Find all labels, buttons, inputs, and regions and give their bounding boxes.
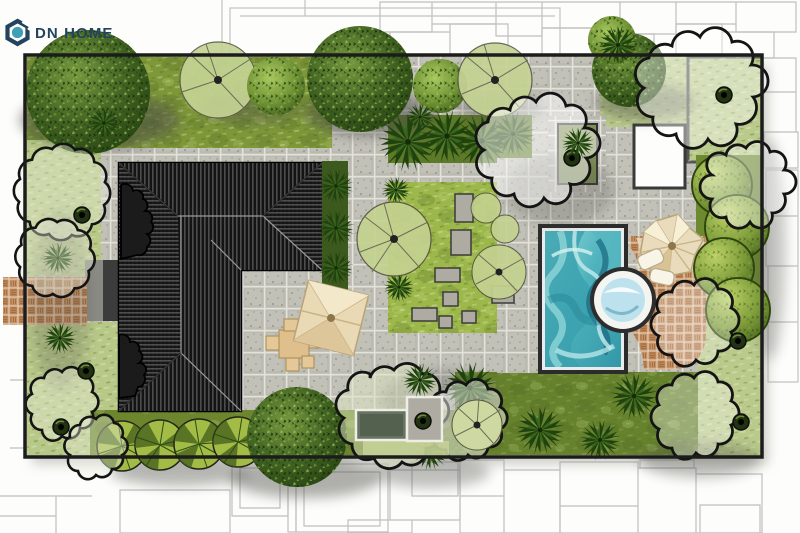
svg-text:DN HOME: DN HOME bbox=[35, 25, 114, 42]
